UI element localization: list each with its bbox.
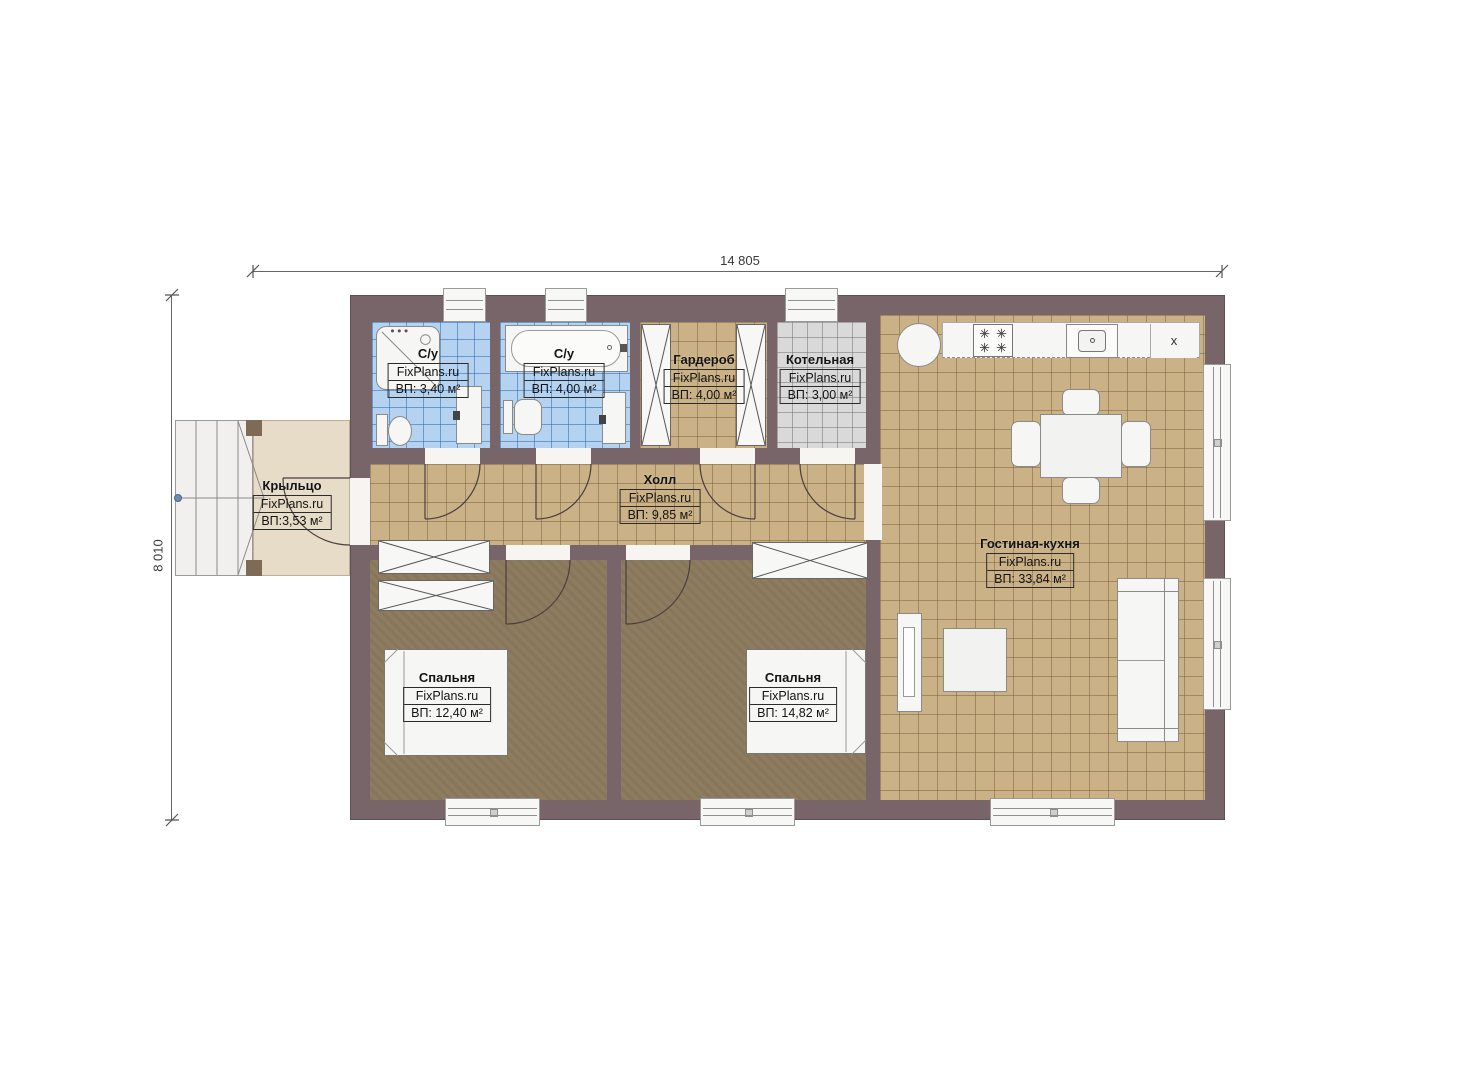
porch-post-top: [246, 420, 262, 436]
room-label-bedroom2: Спальня FixPlans.ru ВП: 14,82 м²: [749, 670, 837, 722]
wardrobe-door-gap: [700, 448, 755, 464]
room-name: Спальня: [419, 670, 475, 685]
room-area: ВП:3,53 м²: [254, 512, 331, 529]
room-info-box: FixPlans.ru ВП: 4,00 м²: [664, 369, 745, 404]
room-area: ВП: 3,00 м²: [781, 386, 860, 403]
room-name: С/у: [418, 346, 438, 361]
sofa-seat-split: [1118, 660, 1164, 661]
room-info-box: FixPlans.ru ВП: 12,40 м²: [403, 687, 491, 722]
room-label-bath2: С/у FixPlans.ru ВП: 4,00 м²: [524, 346, 605, 398]
room-label-boiler: Котельная FixPlans.ru ВП: 3,00 м²: [780, 352, 861, 404]
window-sash: [490, 809, 498, 817]
valve-icon: [453, 411, 460, 420]
room-area: ВП: 14,82 м²: [750, 704, 836, 721]
brand-watermark: FixPlans.ru: [525, 364, 604, 380]
brand-watermark: FixPlans.ru: [750, 688, 836, 704]
room-name: Гардероб: [673, 352, 734, 367]
room-area: ВП: 12,40 м²: [404, 704, 490, 721]
wardrobe-box-icon: [378, 540, 490, 574]
chair-icon: [1062, 477, 1100, 504]
porch-stairs: [175, 420, 253, 576]
coffee-table-icon: [943, 628, 1007, 692]
bathroom2-door-gap: [536, 448, 591, 464]
dimension-height-label: 8 010: [151, 526, 166, 586]
kitchen-sink-icon: [1066, 324, 1118, 358]
room-label-bath1: С/у FixPlans.ru ВП: 3,40 м²: [388, 346, 469, 398]
entrance-door-gap: [350, 478, 370, 545]
window-right-1: [1203, 364, 1231, 521]
radiator-icon: [602, 392, 626, 444]
valve-icon: [599, 415, 606, 424]
sofa-icon: [1117, 578, 1179, 742]
wardrobe-box-icon: [378, 580, 494, 611]
boiler-door-gap: [800, 448, 855, 464]
room-info-box: FixPlans.ru ВП: 4,00 м²: [524, 363, 605, 398]
room-label-bedroom1: Спальня FixPlans.ru ВП: 12,40 м²: [403, 670, 491, 722]
chair-icon: [1121, 421, 1151, 467]
room-label-wardrobe: Гардероб FixPlans.ru ВП: 4,00 м²: [664, 352, 745, 404]
room-label-porch: Крыльцо FixPlans.ru ВП:3,53 м²: [253, 478, 332, 530]
room-info-box: FixPlans.ru ВП: 14,82 м²: [749, 687, 837, 722]
room-area: ВП: 33,84 м²: [987, 570, 1073, 587]
floor-plan: 14 805 8 010: [0, 0, 1474, 1080]
faucet-icon: [1090, 338, 1095, 343]
drain-icon: [607, 345, 612, 350]
dining-table-icon: [1040, 414, 1122, 478]
fridge-icon: [897, 323, 941, 367]
room-label-living: Гостиная-кухня FixPlans.ru ВП: 33,84 м²: [980, 536, 1080, 588]
dimension-line-top: [253, 271, 1222, 272]
porch-post-bottom: [246, 560, 262, 576]
window-sash: [1050, 809, 1058, 817]
tv-icon: [903, 627, 915, 697]
window-sash: [1214, 439, 1222, 447]
room-area: ВП: 4,00 м²: [525, 380, 604, 397]
toilet-bowl-icon: [388, 416, 412, 446]
window-top-3: [785, 288, 838, 322]
room-name: Крыльцо: [262, 478, 321, 493]
chair-icon: [1062, 389, 1100, 416]
chair-icon: [1011, 421, 1041, 467]
brand-watermark: FixPlans.ru: [665, 370, 744, 386]
window-sash: [745, 809, 753, 817]
dimension-width-label: 14 805: [700, 253, 780, 268]
room-info-box: FixPlans.ru ВП: 3,40 м²: [388, 363, 469, 398]
window-bottom-1: [445, 798, 540, 826]
cabinet-mark: x: [1171, 333, 1178, 348]
toilet-icon: [376, 414, 388, 446]
room-name: Гостиная-кухня: [980, 536, 1080, 551]
room-label-hall: Холл FixPlans.ru ВП: 9,85 м²: [620, 472, 701, 524]
sofa-armrest: [1118, 728, 1178, 741]
brand-watermark: FixPlans.ru: [621, 490, 700, 506]
window-bottom-3: [990, 798, 1115, 826]
bedroom1-door-gap: [506, 545, 570, 560]
room-area: ВП: 9,85 м²: [621, 506, 700, 523]
tv-stand-icon: [897, 613, 922, 712]
room-area: ВП: 3,40 м²: [389, 380, 468, 397]
room-info-box: FixPlans.ru ВП: 3,00 м²: [780, 369, 861, 404]
faucet-icon: [620, 344, 627, 352]
room-name: Котельная: [786, 352, 854, 367]
brand-watermark: FixPlans.ru: [404, 688, 490, 704]
brand-watermark: FixPlans.ru: [254, 496, 331, 512]
window-bottom-2: [700, 798, 795, 826]
brand-watermark: FixPlans.ru: [987, 554, 1073, 570]
living-opening: [864, 464, 882, 540]
room-info-box: FixPlans.ru ВП: 9,85 м²: [620, 489, 701, 524]
window-top-1: [443, 288, 486, 322]
bedroom2-door-gap: [626, 545, 690, 560]
sofa-back: [1164, 579, 1178, 741]
dimension-line-left: [171, 295, 172, 820]
brand-watermark: FixPlans.ru: [389, 364, 468, 380]
toilet-icon: [503, 400, 513, 434]
window-top-2: [545, 288, 587, 322]
wardrobe-box-icon: [752, 542, 868, 579]
hall-floor: [370, 464, 866, 545]
sofa-armrest: [1118, 579, 1178, 592]
room-name: Спальня: [765, 670, 821, 685]
room-area: ВП: 4,00 м²: [665, 386, 744, 403]
room-name: С/у: [554, 346, 574, 361]
window-right-2: [1203, 578, 1231, 710]
toilet-bowl-icon: [514, 399, 542, 435]
brand-watermark: FixPlans.ru: [781, 370, 860, 386]
stove-icon: [973, 324, 1013, 357]
bathroom1-door-gap: [425, 448, 480, 464]
room-info-box: FixPlans.ru ВП:3,53 м²: [253, 495, 332, 530]
room-name: Холл: [644, 472, 677, 487]
kitchen-cabinet-x: x: [1150, 324, 1197, 358]
window-sash: [1214, 641, 1222, 649]
room-info-box: FixPlans.ru ВП: 33,84 м²: [986, 553, 1074, 588]
